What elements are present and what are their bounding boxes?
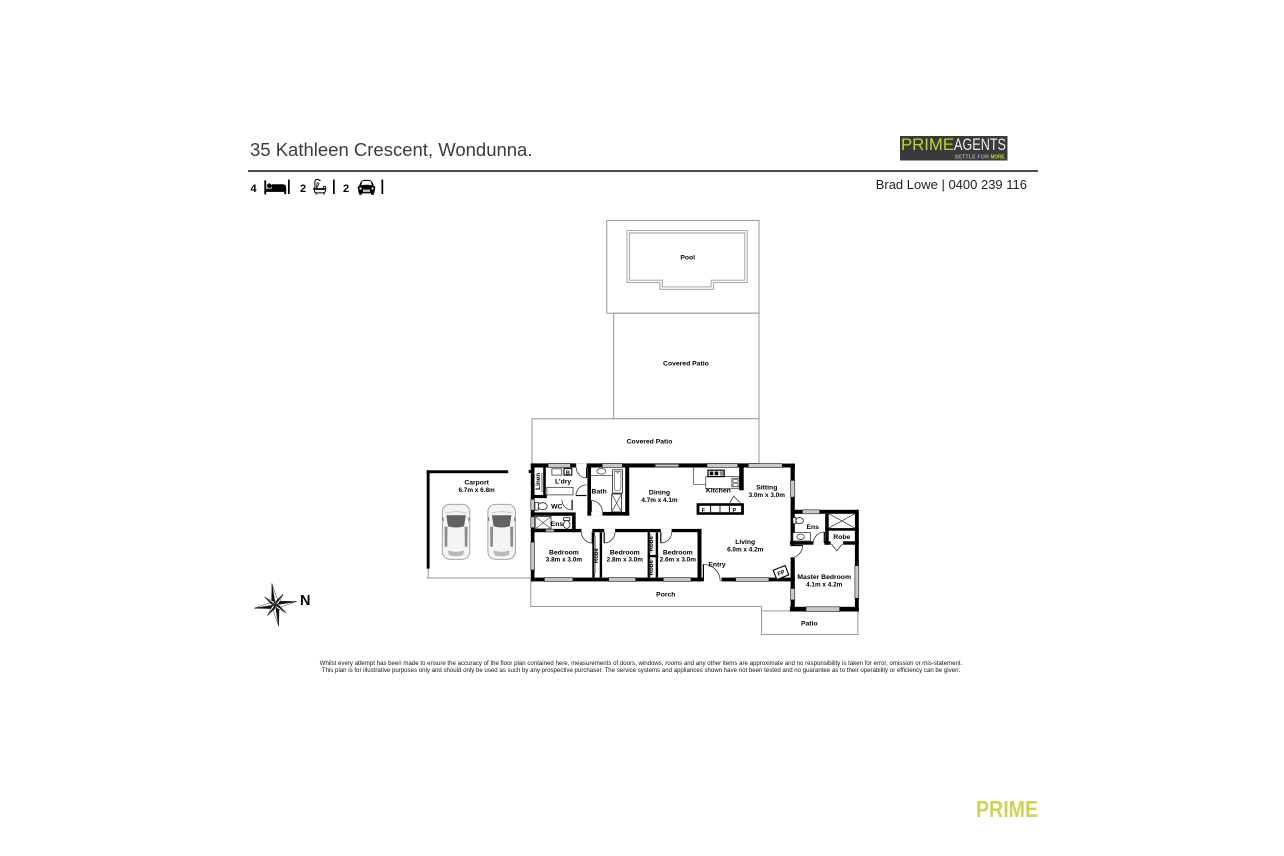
- svg-text:Master Bedroom: Master Bedroom: [797, 574, 851, 581]
- svg-text:2.6m x 3.0m: 2.6m x 3.0m: [660, 557, 697, 564]
- svg-text:Bath: Bath: [592, 489, 607, 496]
- svg-text:4.1m x 4.2m: 4.1m x 4.2m: [806, 581, 843, 588]
- svg-text:B: B: [566, 470, 570, 476]
- svg-text:PRIME: PRIME: [976, 799, 1038, 821]
- svg-text:L’dry: L’dry: [555, 478, 571, 485]
- svg-text:Entry: Entry: [708, 562, 726, 569]
- svg-text:Porch: Porch: [656, 591, 675, 598]
- svg-text:3.8m x 3.0m: 3.8m x 3.0m: [546, 557, 583, 564]
- svg-text:Robe: Robe: [594, 547, 600, 563]
- svg-text:Carport: Carport: [464, 480, 489, 487]
- svg-text:Ens: Ens: [806, 524, 819, 531]
- svg-text:P: P: [733, 508, 737, 514]
- svg-text:2.8m x 3.0m: 2.8m x 3.0m: [607, 557, 644, 564]
- svg-text:Sitting: Sitting: [756, 484, 777, 491]
- svg-text:Living: Living: [735, 539, 755, 546]
- svg-text:Bedroom: Bedroom: [610, 549, 640, 556]
- svg-text:Patio: Patio: [801, 621, 818, 628]
- svg-text:Kitchen: Kitchen: [706, 488, 731, 495]
- svg-text:Robe: Robe: [833, 534, 850, 541]
- svg-text:N: N: [300, 593, 310, 609]
- svg-text:Robe: Robe: [649, 560, 655, 576]
- svg-text:Robe: Robe: [649, 536, 655, 552]
- svg-text:F: F: [702, 508, 706, 514]
- svg-text:Ens: Ens: [551, 521, 564, 528]
- svg-text:4.7m x 4.1m: 4.7m x 4.1m: [641, 497, 678, 504]
- svg-text:3.0m x 3.0m: 3.0m x 3.0m: [749, 492, 786, 499]
- svg-text:6.0m x 4.2m: 6.0m x 4.2m: [727, 547, 764, 554]
- svg-text:Bedroom: Bedroom: [663, 549, 693, 556]
- svg-text:Linen: Linen: [535, 473, 542, 490]
- svg-text:Pool: Pool: [680, 255, 695, 262]
- svg-text:WC: WC: [551, 504, 562, 511]
- svg-text:6.7m x 6.8m: 6.7m x 6.8m: [458, 487, 495, 494]
- svg-text:Covered Patio: Covered Patio: [627, 438, 673, 445]
- svg-text:Bedroom: Bedroom: [549, 549, 579, 556]
- svg-text:Dining: Dining: [649, 490, 670, 497]
- svg-text:Covered Patio: Covered Patio: [663, 361, 709, 368]
